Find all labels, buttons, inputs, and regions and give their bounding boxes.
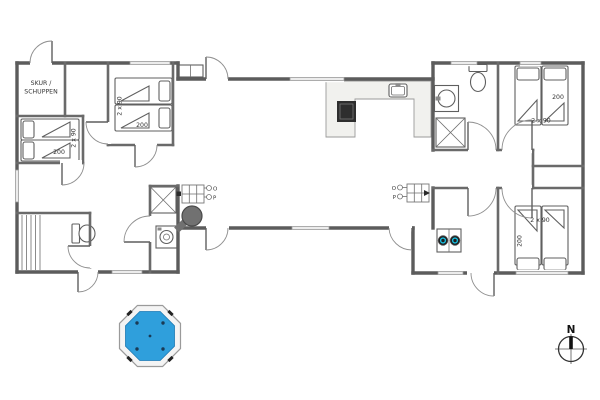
door-utility-right xyxy=(468,188,496,216)
shed-label-line1: SKUR / xyxy=(31,80,53,87)
shower-icon-left xyxy=(151,187,177,213)
washer-dryer-icon xyxy=(437,229,461,252)
bathroom-sink-icon xyxy=(435,86,459,112)
pillow xyxy=(544,68,566,80)
bed-width-right-top: 2 x 90 xyxy=(531,118,550,125)
door-utility-left xyxy=(124,216,150,242)
bed-width-left-lower: 2 x 90 xyxy=(71,128,78,147)
bed-width-left-upper: 2 x 90 xyxy=(117,96,124,115)
shower-icon-right xyxy=(436,118,465,147)
pillow xyxy=(23,142,34,159)
windows xyxy=(14,60,568,276)
symbol-label-p: P xyxy=(213,196,217,202)
floor-plan-drawing: O P O P N SKUR / xyxy=(0,0,600,400)
window xyxy=(292,227,329,230)
pillow xyxy=(159,108,170,128)
bed-length-left-upper: 200 xyxy=(136,122,148,129)
bed-length-right-top: 200 xyxy=(552,94,564,101)
kitchen-counter xyxy=(326,81,431,137)
floor-plan-page: O P O P N SKUR / xyxy=(0,0,600,400)
compass-north-label: N xyxy=(567,324,576,336)
pillow xyxy=(159,81,170,101)
pillow xyxy=(544,258,566,270)
window xyxy=(16,170,19,202)
door-bedroom-left-upper xyxy=(86,122,108,144)
symbol-label-o: O xyxy=(392,186,396,192)
bed-length-left-lower: 200 xyxy=(53,149,65,156)
sauna-bench-slats xyxy=(22,215,40,270)
compass-north-icon: N xyxy=(555,324,587,364)
symbol-label-p: P xyxy=(393,195,397,201)
room-labels: SKUR / SCHUPPEN 200 2 x 90 200 2 x 90 20… xyxy=(24,80,564,247)
pillow xyxy=(517,68,539,80)
door-bathroom-left xyxy=(68,246,90,268)
window xyxy=(520,62,541,65)
pillow xyxy=(517,258,539,270)
walls-interior xyxy=(17,63,583,273)
symbol-label-o: O xyxy=(213,187,217,193)
door-bathroom-right xyxy=(468,122,496,150)
bed-width-right-bottom: 2 x 90 xyxy=(530,217,549,224)
hot-tub xyxy=(120,306,181,367)
washing-machine-icon-left xyxy=(156,226,177,248)
kitchen-sink-icon xyxy=(389,83,407,97)
shed-label-line2: SCHUPPEN xyxy=(24,89,58,96)
toilet-icon-right xyxy=(469,65,487,92)
symbol-grid-left: O P xyxy=(177,185,218,203)
furniture-layer xyxy=(21,65,568,271)
window xyxy=(516,272,568,275)
toilet-icon-left xyxy=(72,224,95,243)
bed-length-right-bottom: 200 xyxy=(517,235,524,247)
window xyxy=(130,62,170,65)
door-hall-left xyxy=(135,145,157,167)
window xyxy=(112,271,142,274)
symbol-grid-right: O P xyxy=(392,184,430,202)
wardrobe xyxy=(178,65,203,77)
window xyxy=(451,62,477,65)
pillow xyxy=(23,121,34,138)
window xyxy=(438,272,463,275)
door-bedroom-left-lower xyxy=(62,163,84,185)
window xyxy=(290,78,344,81)
